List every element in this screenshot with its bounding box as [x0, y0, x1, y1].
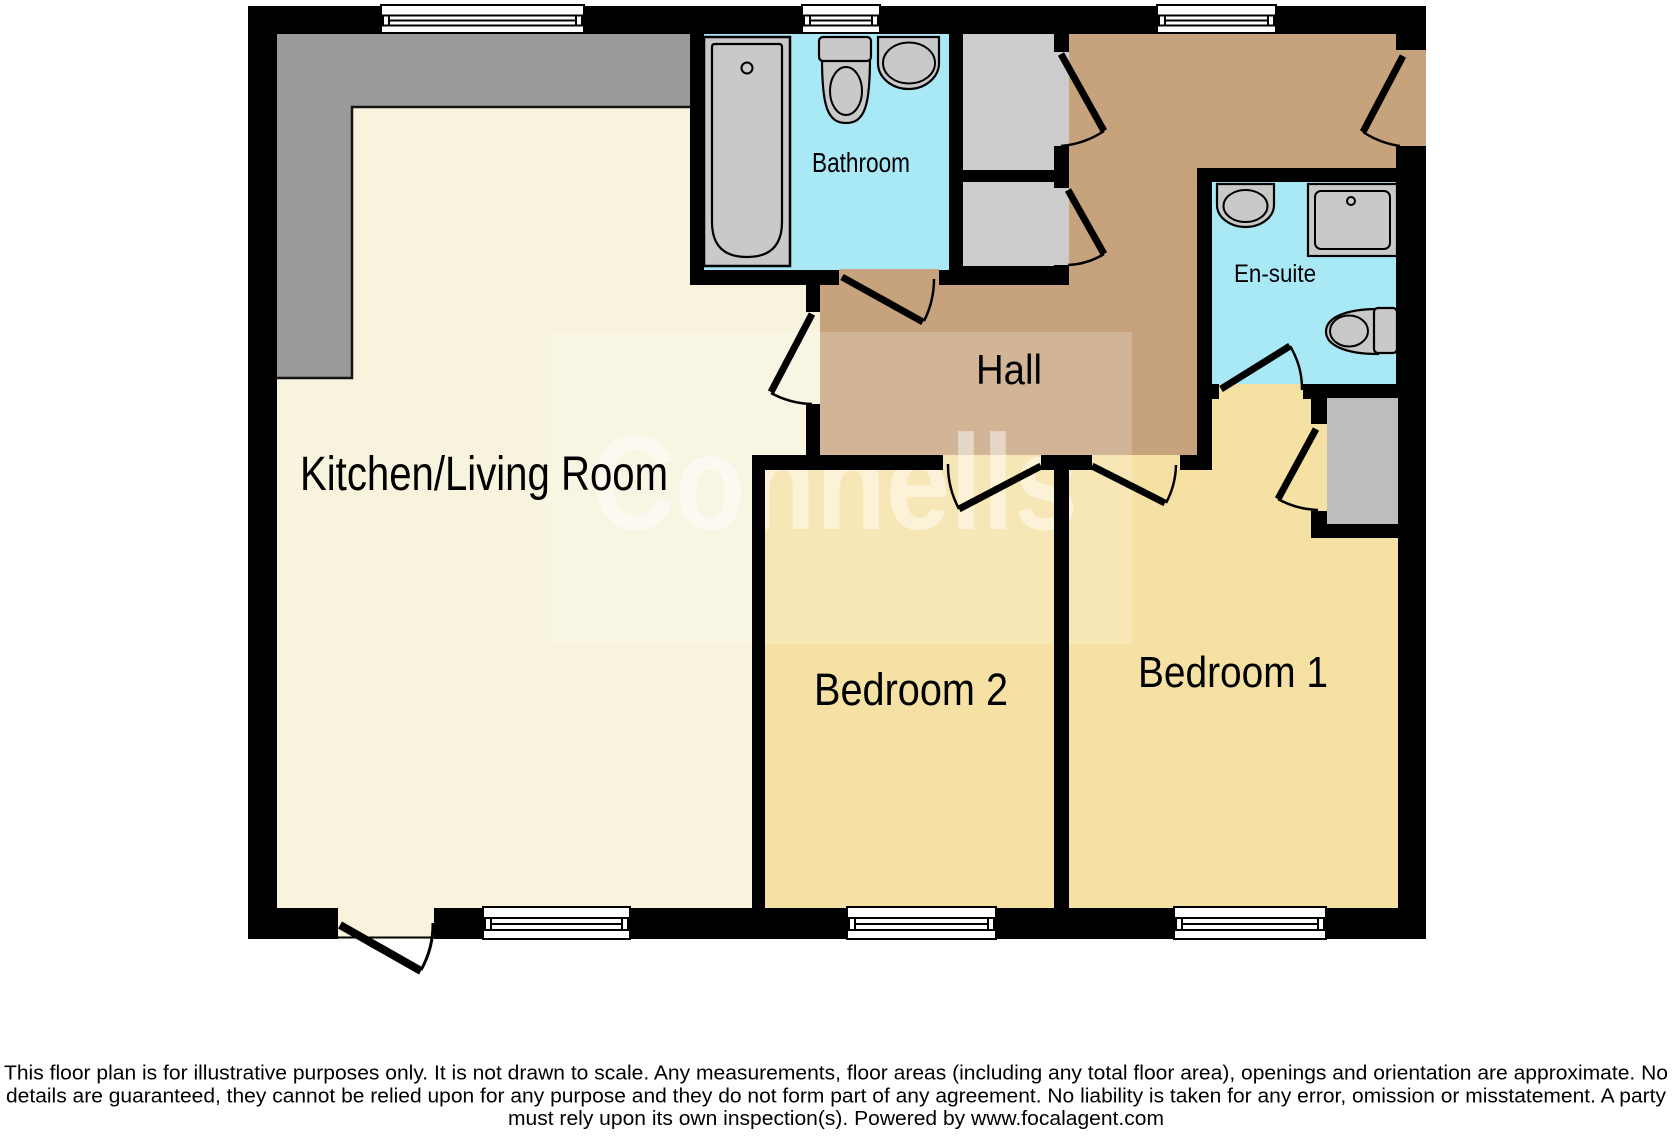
- svg-text:En-suite: En-suite: [1234, 260, 1316, 288]
- svg-text:Hall: Hall: [976, 346, 1042, 393]
- svg-text:Kitchen/Living Room: Kitchen/Living Room: [300, 448, 668, 501]
- svg-text:Bedroom 2: Bedroom 2: [814, 664, 1008, 715]
- svg-text:must rely upon its own inspect: must rely upon its own inspection(s). Po…: [508, 1108, 1164, 1130]
- svg-text:Bedroom 1: Bedroom 1: [1138, 648, 1328, 697]
- svg-text:This floor plan is for illustr: This floor plan is for illustrative purp…: [4, 1063, 1668, 1085]
- svg-text:details are guaranteed, they c: details are guaranteed, they cannot be r…: [6, 1085, 1666, 1107]
- svg-text:Bathroom: Bathroom: [812, 147, 910, 178]
